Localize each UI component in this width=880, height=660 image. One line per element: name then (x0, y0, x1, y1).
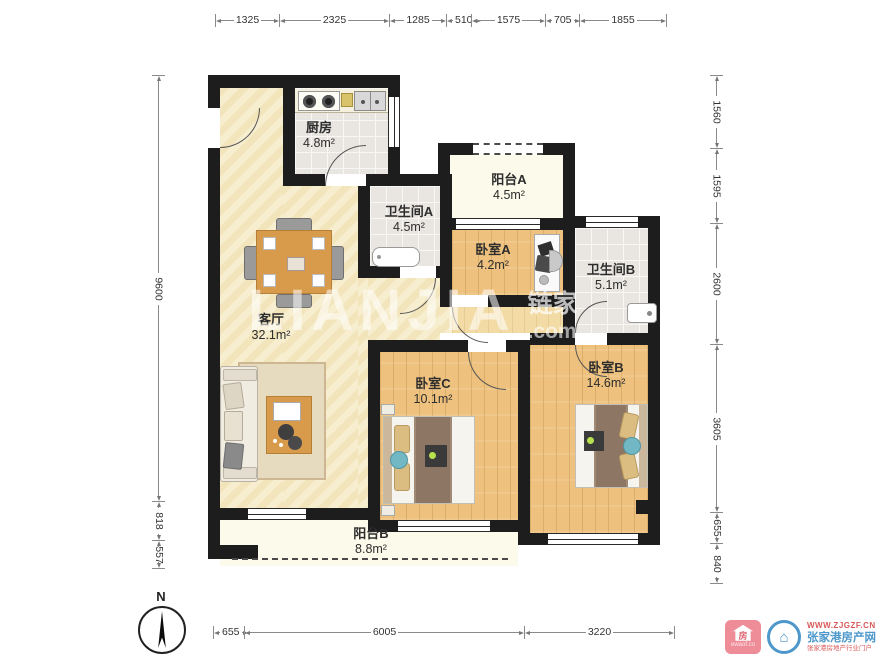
dimension-chain-left: 9600 818 557 (152, 75, 165, 569)
room-label-kitchen: 厨房4.8m² (273, 120, 365, 151)
window (548, 533, 638, 545)
dim-value: 1575 (495, 14, 522, 27)
plate-icon (263, 274, 276, 287)
dimension-segment: 1560 (710, 75, 723, 148)
drain-icon (377, 255, 381, 259)
balcony-edge-dashed (232, 558, 508, 560)
dimension-segment: 1285 (389, 14, 446, 27)
wall (518, 340, 530, 545)
wall (208, 545, 258, 559)
wall (438, 143, 450, 186)
dim-value: 2325 (321, 14, 348, 27)
cup-icon (273, 439, 277, 443)
dimension-chain-top: 1325 2325 1285 510 1575 705 1855 (215, 14, 667, 27)
compass-north-label: N (150, 589, 172, 604)
dim-value: 705 (552, 14, 574, 27)
dimension-segment: 3605 (710, 344, 723, 512)
room-label-bath-b: 卫生间B5.1m² (565, 262, 657, 293)
dim-value: 818 (152, 508, 165, 534)
bed-pillow (394, 425, 410, 453)
window (388, 97, 400, 147)
round-cushion (623, 437, 641, 455)
floor-hall (440, 307, 452, 333)
cup-icon (279, 443, 283, 447)
dim-value: 655 (710, 519, 723, 537)
dim-value: 557 (152, 547, 165, 562)
window (586, 216, 638, 228)
wall (368, 340, 380, 532)
footer-logos: 房 ewaof.co ⌂ WWW.ZJGZF.CN 张家港房产网 张家港房地产行… (725, 620, 876, 654)
dim-value: 9600 (152, 273, 165, 305)
dimension-segment: 840 (710, 543, 723, 584)
dim-value: 2600 (710, 268, 723, 300)
door-arc (452, 307, 488, 343)
dimension-segment: 510 (446, 14, 471, 27)
site-logo-icon: ⌂ (767, 620, 801, 654)
window (248, 508, 306, 520)
dimension-segment: 705 (545, 14, 579, 27)
round-cushion (390, 451, 408, 469)
sofa (220, 366, 258, 482)
dimension-segment: 557 (152, 540, 165, 569)
room-label-bedroom-a: 卧室A4.2m² (447, 242, 539, 273)
dim-value: 6005 (371, 626, 398, 639)
wall (636, 500, 648, 514)
dim-value: 1595 (710, 170, 723, 202)
room-label-living: 客厅32.1m² (225, 312, 317, 343)
window (456, 218, 540, 230)
site-url: WWW.ZJGZF.CN (807, 621, 876, 631)
bathtub (372, 247, 420, 267)
plate-icon (312, 274, 325, 287)
washbasin (627, 303, 657, 323)
dim-value: 3605 (710, 413, 723, 445)
dim-value: 1325 (234, 14, 261, 27)
bed-tray-icon (425, 445, 447, 467)
dimension-segment: 6005 (244, 626, 524, 639)
dim-value: 840 (710, 550, 723, 577)
dimension-segment: 818 (152, 501, 165, 540)
dimension-segment: 1855 (579, 14, 667, 27)
room-label-bedroom-c: 卧室C10.1m² (387, 376, 479, 407)
dimension-segment: 2325 (279, 14, 389, 27)
house-logo-icon: 房 ewaof.co (725, 620, 761, 654)
bed (575, 404, 648, 488)
door-opening (575, 333, 607, 345)
floor-living (358, 278, 368, 508)
sink (354, 91, 386, 111)
tray-icon (273, 402, 301, 421)
drain-icon (361, 100, 365, 104)
north-needle-icon (156, 611, 168, 648)
dimension-segment: 1595 (710, 148, 723, 223)
dimension-segment: 9600 (152, 75, 165, 501)
dimension-chain-bottom: 655 6005 3220 (213, 626, 675, 639)
dimension-segment: 2600 (710, 223, 723, 344)
dimension-segment: 1575 (471, 14, 545, 27)
dimension-chain-right: 1560 1595 2600 3605 655 840 (710, 75, 723, 584)
dimension-segment: 655 (710, 512, 723, 543)
bed (383, 416, 475, 504)
balcony-opening (473, 143, 543, 155)
compass-icon (138, 606, 186, 654)
coffee-table (266, 396, 312, 454)
room-label-bedroom-b: 卧室B14.6m² (560, 360, 652, 391)
kitchen-appliance (341, 93, 353, 107)
nightstand (381, 505, 395, 516)
dim-value: 1560 (710, 96, 723, 128)
dim-value: 1285 (404, 14, 431, 27)
house-logo-subtext: ewaof.co (731, 641, 755, 649)
room-label-balcony-b: 阳台B8.8m² (325, 526, 417, 557)
plate-icon (312, 237, 325, 250)
site-tagline: 张家港房地产行业门户 (807, 645, 876, 653)
sink-divider (370, 92, 371, 110)
site-name: 张家港房产网 (807, 631, 876, 645)
dim-value: 3220 (586, 626, 613, 639)
dining-table (256, 230, 332, 294)
wall (208, 75, 400, 88)
dimension-segment: 655 (213, 626, 244, 639)
house-icon: 房 (733, 625, 753, 641)
dining-chair (330, 246, 344, 280)
dot-icon (587, 437, 594, 444)
sofa-pillow (222, 382, 244, 410)
dim-value: 1855 (609, 14, 636, 27)
sofa-armrest (223, 369, 257, 381)
door-opening (452, 295, 488, 307)
door-opening (208, 108, 220, 148)
dimension-segment: 1325 (215, 14, 279, 27)
door-opening (400, 266, 436, 278)
bed-tray-icon (584, 431, 604, 451)
floorplan-canvas: 1325 2325 1285 510 1575 705 1855 9600 81… (0, 0, 880, 660)
faucet-icon (647, 311, 652, 316)
dot-icon (429, 452, 436, 459)
plant-icon (539, 275, 549, 285)
wall (563, 143, 575, 345)
kettle-icon (288, 436, 302, 450)
burner-icon (322, 95, 335, 108)
sofa-pillow (224, 411, 243, 441)
burner-icon (303, 95, 316, 108)
stove (298, 91, 340, 111)
site-logo-text: WWW.ZJGZF.CN 张家港房产网 张家港房地产行业门户 (807, 621, 876, 654)
centerpiece-icon (287, 257, 305, 271)
dim-value: 655 (220, 626, 242, 639)
room-label-balcony-a: 阳台A4.5m² (463, 172, 555, 203)
room-label-bath-a: 卫生间A4.5m² (363, 204, 455, 235)
plate-icon (263, 237, 276, 250)
dining-chair (276, 294, 312, 308)
sofa-pillow (223, 442, 245, 470)
drain-icon (375, 100, 379, 104)
dimension-segment: 3220 (524, 626, 675, 639)
